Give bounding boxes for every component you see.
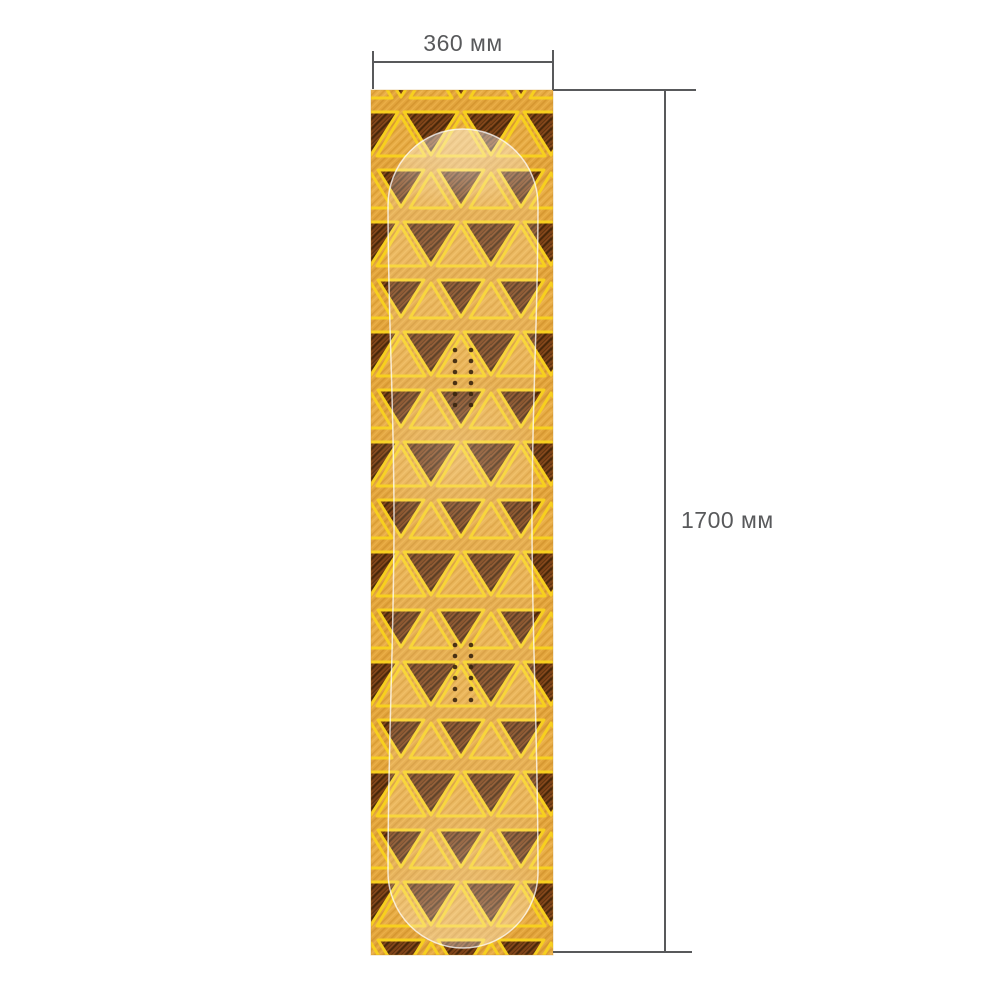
diagram-canvas xyxy=(0,0,1000,1000)
snowboard-dimension-diagram: 360 мм 1700 мм xyxy=(0,0,1000,1000)
board-bottom-sheen xyxy=(385,790,545,930)
board-mid-sheen xyxy=(363,375,547,535)
board-top-sheen xyxy=(397,126,529,210)
height-dimension-label: 1700 мм xyxy=(681,507,774,534)
width-dimension-label: 360 мм xyxy=(363,30,563,57)
